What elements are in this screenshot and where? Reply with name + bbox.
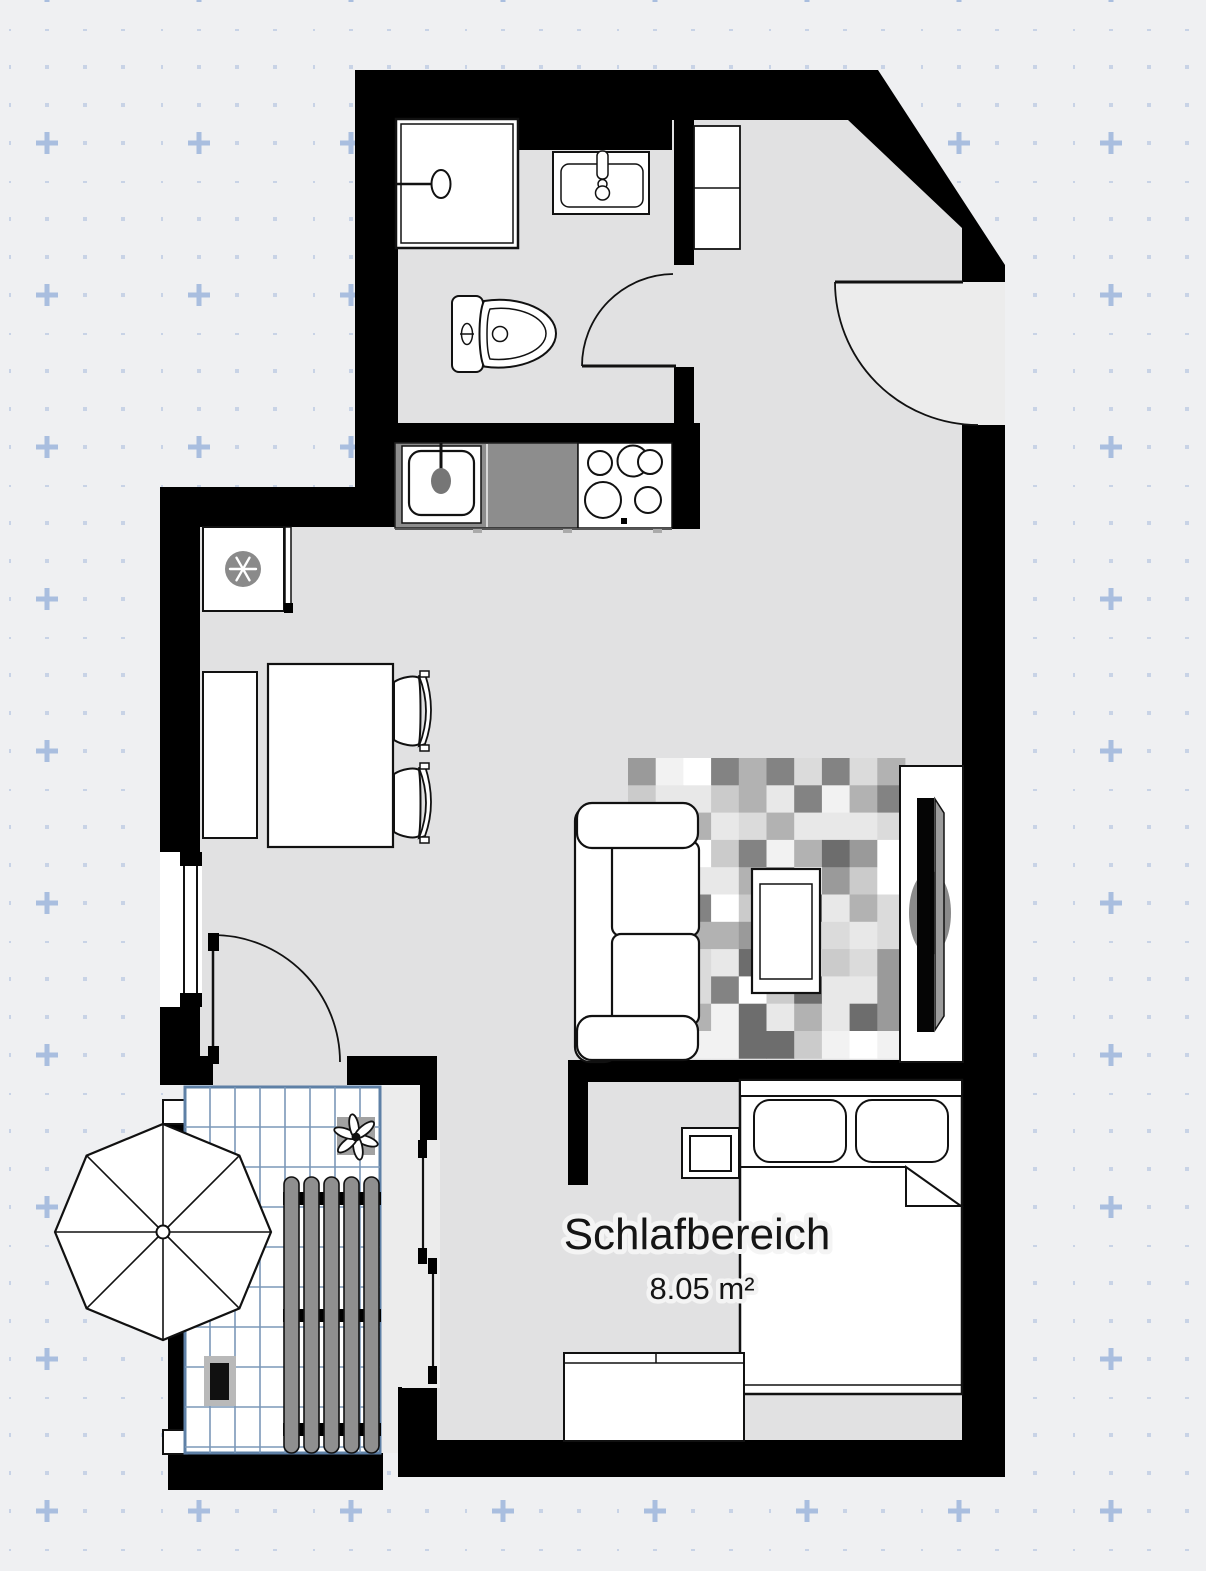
pillow-right [856, 1100, 948, 1162]
parasol [55, 1124, 271, 1340]
plant [333, 1114, 379, 1161]
balcony-sliding-door [402, 1140, 440, 1388]
doormat [204, 1356, 236, 1406]
balcony-railing-bottom [168, 1453, 383, 1490]
dresser [564, 1353, 744, 1441]
room-area-label: 8.05 m² [649, 1271, 754, 1306]
refrigerator [203, 527, 293, 613]
bathroom-shelf [517, 118, 672, 150]
sun-lounger [283, 1177, 381, 1453]
chair-2 [394, 763, 431, 843]
nightstand [682, 1128, 739, 1178]
left-window [160, 852, 202, 1007]
sofa [575, 803, 699, 1062]
shower [396, 119, 518, 248]
kitchen-sink [402, 443, 481, 523]
floor-plan: Schlafbereich 8.05 m² [0, 0, 1206, 1571]
tv-screen [917, 798, 934, 1032]
washbasin [553, 151, 649, 214]
room-name-label: Schlafbereich [564, 1210, 831, 1259]
railing-post-top [163, 1100, 187, 1124]
chair-1 [394, 671, 431, 751]
living [575, 758, 963, 1062]
bench [203, 672, 257, 838]
floor-plan-canvas: Schlafbereich 8.05 m² [0, 0, 1206, 1571]
dining-table [268, 664, 393, 847]
coffee-table [752, 869, 820, 993]
stove [578, 443, 672, 528]
tv-board [900, 766, 963, 1062]
railing-post-bottom [163, 1430, 187, 1454]
hall-wardrobe [694, 126, 740, 249]
pillow-left [754, 1100, 846, 1162]
